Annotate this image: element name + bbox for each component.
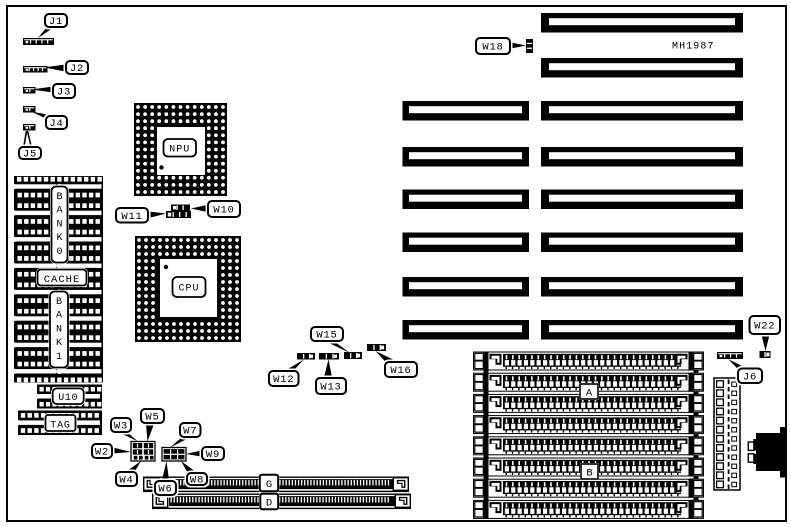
svg-text:B: B xyxy=(56,192,62,203)
svg-text:W12: W12 xyxy=(273,374,294,386)
svg-text:CPU: CPU xyxy=(178,284,199,295)
svg-text:J1: J1 xyxy=(49,16,63,28)
svg-text:A: A xyxy=(56,311,62,322)
svg-text:W8: W8 xyxy=(190,475,204,487)
svg-text:TAG: TAG xyxy=(50,421,70,432)
svg-text:W9: W9 xyxy=(206,449,220,461)
svg-text:J6: J6 xyxy=(743,371,757,383)
svg-text:K: K xyxy=(56,338,62,349)
svg-text:J2: J2 xyxy=(70,63,84,75)
svg-text:B: B xyxy=(586,468,592,480)
svg-text:NPU: NPU xyxy=(169,144,190,155)
svg-text:U10: U10 xyxy=(58,393,78,404)
svg-text:G: G xyxy=(266,479,272,491)
svg-text:W7: W7 xyxy=(183,426,197,438)
svg-text:D: D xyxy=(266,498,272,510)
svg-text:0: 0 xyxy=(56,247,62,258)
svg-text:B: B xyxy=(56,297,62,308)
svg-text:W6: W6 xyxy=(158,484,172,496)
svg-text:N: N xyxy=(56,324,62,335)
svg-text:N: N xyxy=(56,219,62,230)
svg-text:W3: W3 xyxy=(114,421,128,433)
svg-text:W18: W18 xyxy=(482,42,503,54)
svg-text:W2: W2 xyxy=(95,447,109,459)
svg-text:MH1987: MH1987 xyxy=(672,42,715,53)
svg-text:A: A xyxy=(586,388,593,400)
svg-text:W11: W11 xyxy=(121,211,142,223)
svg-text:J3: J3 xyxy=(57,87,71,99)
svg-text:1: 1 xyxy=(56,352,62,363)
svg-text:W22: W22 xyxy=(754,321,775,333)
svg-text:A: A xyxy=(56,206,62,217)
svg-text:W5: W5 xyxy=(145,412,159,424)
svg-text:W13: W13 xyxy=(320,382,341,394)
svg-text:J5: J5 xyxy=(23,149,37,161)
svg-text:W10: W10 xyxy=(213,205,234,217)
svg-text:K: K xyxy=(56,233,62,244)
svg-text:W15: W15 xyxy=(316,330,337,342)
svg-text:CACHE: CACHE xyxy=(44,274,81,286)
svg-text:J4: J4 xyxy=(49,118,63,130)
svg-text:W16: W16 xyxy=(390,365,411,377)
svg-text:W4: W4 xyxy=(119,475,133,487)
